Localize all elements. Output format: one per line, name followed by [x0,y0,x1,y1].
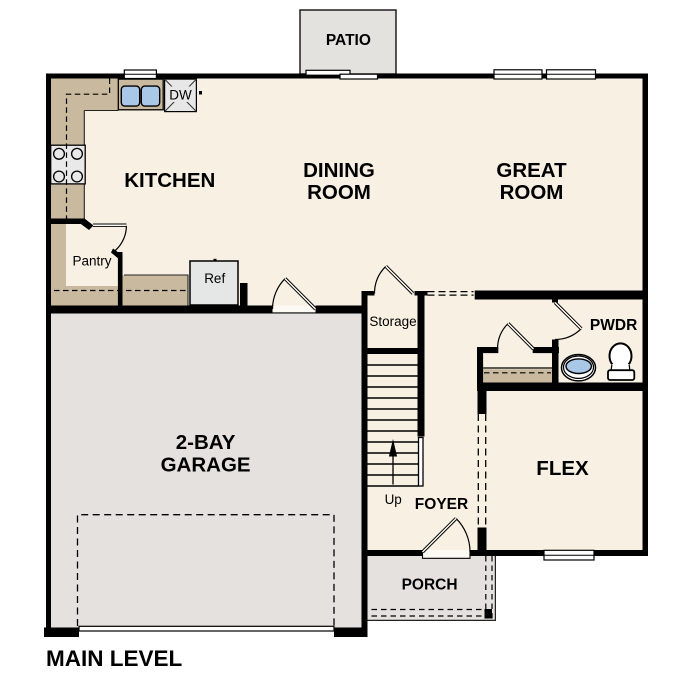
svg-text:MAIN LEVEL: MAIN LEVEL [46,646,183,671]
svg-text:FLEX: FLEX [536,457,589,480]
svg-text:ROOM: ROOM [500,181,564,204]
svg-text:ROOM: ROOM [307,181,371,204]
svg-text:GARAGE: GARAGE [161,453,251,476]
svg-text:PATIO: PATIO [326,32,371,49]
svg-text:PORCH: PORCH [402,576,458,593]
svg-text:GREAT: GREAT [496,159,567,182]
svg-text:KITCHEN: KITCHEN [124,169,215,192]
svg-text:Up: Up [385,492,402,507]
svg-text:DINING: DINING [303,159,375,182]
svg-text:Storage: Storage [369,314,416,329]
svg-text:Pantry: Pantry [72,254,111,269]
svg-text:FOYER: FOYER [415,496,468,513]
svg-text:DW: DW [169,88,192,103]
svg-text:PWDR: PWDR [590,317,637,334]
svg-text:Ref: Ref [204,271,225,286]
svg-text:2-BAY: 2-BAY [176,431,236,454]
